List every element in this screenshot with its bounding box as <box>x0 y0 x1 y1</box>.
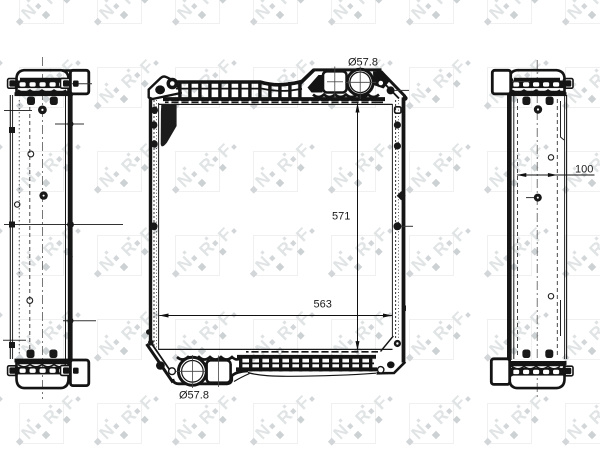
svg-text:Ø57.8: Ø57.8 <box>348 57 378 69</box>
svg-text:Ø57.8: Ø57.8 <box>179 390 209 402</box>
svg-text:571: 571 <box>332 211 350 223</box>
svg-text:563: 563 <box>314 299 332 311</box>
svg-text:100: 100 <box>575 164 593 176</box>
